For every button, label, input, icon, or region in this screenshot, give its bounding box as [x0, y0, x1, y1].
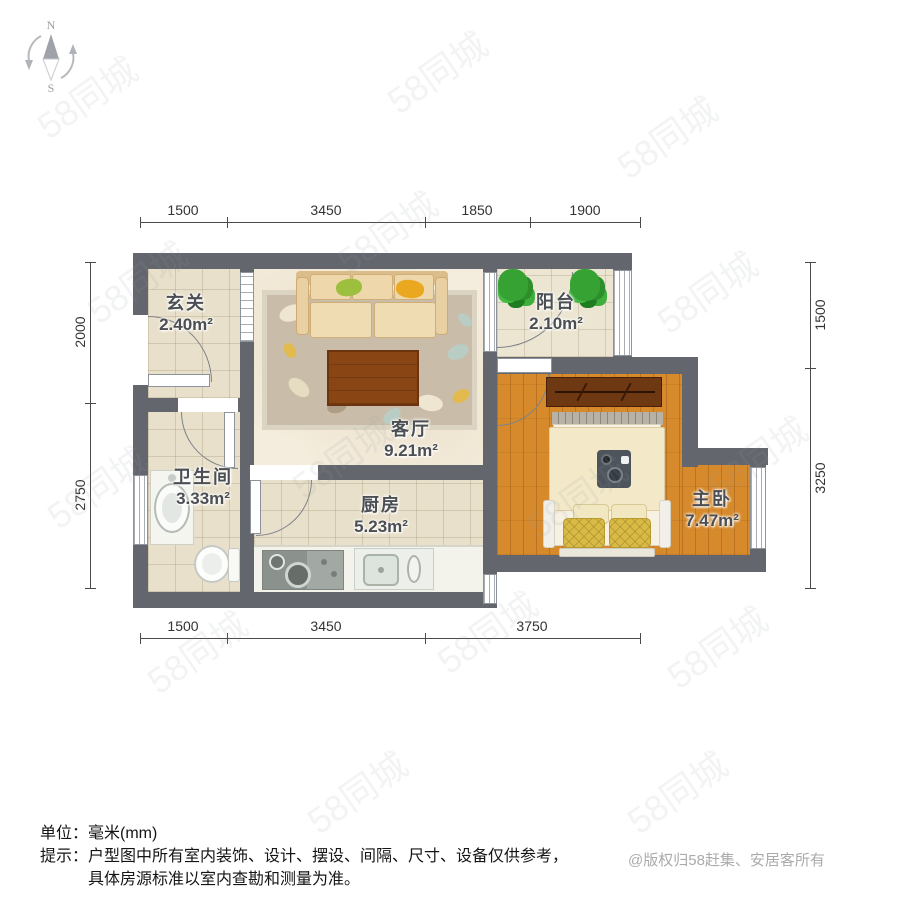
- unit-note: 单位：毫米(mm): [40, 819, 157, 843]
- dimension-tick: [227, 217, 228, 228]
- watermark: 58同城: [375, 18, 497, 125]
- sink-drain: [378, 567, 384, 573]
- dimension-label: 1500: [143, 618, 223, 634]
- rug-pattern-leaf: [456, 311, 474, 329]
- dimension-line-top: [140, 222, 641, 223]
- dimension-line-right: [810, 262, 811, 588]
- sofa-armrest: [296, 277, 309, 335]
- room-label-bathroom: 卫生间 3.33m²: [143, 466, 263, 510]
- dimension-label: 2000: [72, 292, 88, 372]
- room-area: 5.23m²: [321, 516, 441, 538]
- watermark: 58同城: [135, 598, 257, 705]
- room-label-balcony: 阳台 2.10m²: [496, 291, 616, 335]
- entry-window: [240, 272, 254, 342]
- room-name: 主卧: [652, 488, 772, 510]
- room-name: 厨房: [321, 494, 441, 516]
- watermark: 58同城: [655, 593, 777, 700]
- rug-pattern-leaf: [285, 374, 313, 401]
- dimension-tick: [85, 588, 96, 589]
- compass-icon: N S: [16, 14, 86, 94]
- room-area: 2.10m²: [496, 313, 616, 335]
- toilet-tank: [228, 548, 240, 582]
- copyright-notice: @版权归58赶集、安居客所有: [628, 849, 825, 870]
- compass-north-label: N: [47, 18, 56, 32]
- dimension-label: 3450: [286, 618, 366, 634]
- bed: [551, 412, 663, 558]
- toilet-seat: [202, 553, 222, 575]
- room-name: 玄关: [136, 292, 236, 314]
- bathroom-door-opening: [178, 398, 238, 412]
- dimension-tick: [227, 633, 228, 644]
- dimension-label: 1500: [143, 202, 223, 218]
- rug-pattern-leaf: [281, 341, 299, 360]
- dimension-tick: [640, 217, 641, 228]
- balcony-glass-door: [483, 272, 497, 352]
- stove-burner: [285, 562, 311, 588]
- kitchen-side-window: [483, 574, 497, 604]
- tray-cup-small: [621, 456, 629, 464]
- dimension-label: 1850: [437, 202, 517, 218]
- wardrobe-rod: [555, 391, 655, 393]
- room-label-entry: 玄关 2.40m²: [136, 292, 236, 336]
- quilted-cushion: [609, 518, 651, 548]
- dimension-label: 1500: [812, 275, 828, 355]
- wardrobe: [546, 377, 662, 407]
- rug-pattern-leaf: [445, 341, 471, 363]
- dimension-tick: [85, 262, 96, 263]
- toilet: [194, 542, 240, 586]
- disclaimer-line1: 提示：户型图中所有室内装饰、设计、摆设、间隔、尺寸、设备仅供参考，: [40, 842, 568, 866]
- bed-tray: [597, 450, 631, 488]
- dimension-label: 3750: [492, 618, 572, 634]
- bedroom-door-leaf: [497, 358, 552, 373]
- dimension-tick: [140, 633, 141, 644]
- faucet: [407, 555, 421, 583]
- sofa-seat-cushion: [310, 302, 372, 338]
- dimension-tick: [805, 588, 816, 589]
- room-name: 客厅: [351, 418, 471, 440]
- bed-footboard: [559, 548, 655, 557]
- disclaimer-line2: 具体房源标准以室内查勘和测量为准。: [88, 865, 360, 889]
- stove-burner: [269, 554, 285, 570]
- compass-south-label: S: [48, 81, 55, 94]
- watermark: 58同城: [645, 238, 767, 345]
- rug-pattern-leaf: [416, 393, 444, 413]
- tray-cup: [601, 454, 612, 465]
- dimension-label: 1900: [545, 202, 625, 218]
- wall: [133, 592, 497, 608]
- watermark: 58同城: [615, 738, 737, 845]
- dimension-tick: [425, 633, 426, 644]
- quilted-cushion: [563, 518, 605, 548]
- room-area: 3.33m²: [143, 488, 263, 510]
- wall: [133, 253, 632, 269]
- watermark: 58同城: [605, 83, 727, 190]
- stove-knob: [331, 571, 337, 577]
- floor-plan-canvas: N S 58同城 58同城 58同城 58同城 58同城 58同城 58同城 5…: [0, 0, 900, 900]
- rug-pattern-leaf: [450, 386, 472, 405]
- dimension-tick: [85, 403, 96, 404]
- room-name: 阳台: [496, 291, 616, 313]
- room-area: 7.47m²: [652, 510, 772, 532]
- room-label-kitchen: 厨房 5.23m²: [321, 494, 441, 538]
- sofa-armrest: [435, 277, 448, 335]
- room-area: 2.40m²: [136, 314, 236, 336]
- dimension-tick: [425, 217, 426, 228]
- dimension-tick: [805, 368, 816, 369]
- dimension-line-bottom: [140, 638, 641, 639]
- stove-knob: [321, 559, 327, 565]
- room-name: 卫生间: [143, 466, 263, 488]
- dimension-label: 3450: [286, 202, 366, 218]
- sofa-seat-cushion: [374, 302, 436, 338]
- stove: [262, 550, 344, 590]
- watermark: 58同城: [295, 738, 417, 845]
- dimension-tick: [640, 633, 641, 644]
- dimension-label: 2750: [72, 455, 88, 535]
- sofa: [296, 271, 448, 339]
- kitchen-sink: [354, 548, 434, 590]
- room-label-bedroom: 主卧 7.47m²: [652, 488, 772, 532]
- dimension-tick: [530, 217, 531, 228]
- coffee-table: [327, 350, 419, 406]
- kitchen-counter: [254, 545, 483, 592]
- dimension-line-left: [90, 262, 91, 588]
- room-label-living: 客厅 9.21m²: [351, 418, 471, 462]
- bed-side-table: [543, 500, 555, 548]
- tray-bowl: [607, 467, 623, 483]
- dimension-tick: [140, 217, 141, 228]
- room-area: 9.21m²: [351, 440, 471, 462]
- dimension-label: 3250: [812, 438, 828, 518]
- dimension-tick: [805, 262, 816, 263]
